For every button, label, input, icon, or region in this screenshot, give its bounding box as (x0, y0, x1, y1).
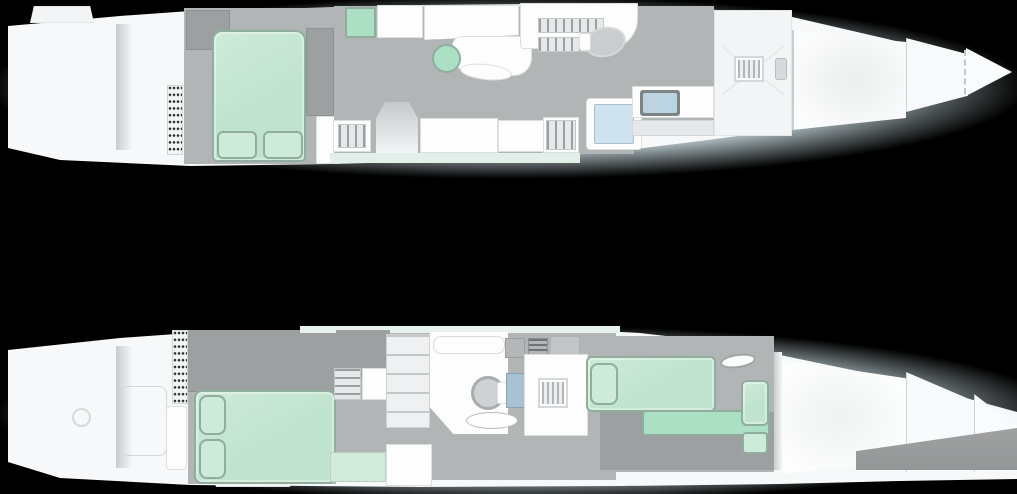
sideboard (166, 406, 187, 470)
deck-rect-outline (120, 386, 167, 456)
green-floor-strip (330, 452, 386, 482)
yacht-deck-plans-canvas (0, 0, 1017, 494)
bed-pillow (199, 395, 226, 435)
lounge-pad-vertical (741, 380, 769, 426)
sunpad-pillow (590, 363, 618, 405)
upper-deck-plan (0, 0, 1017, 178)
dinette-round-table (432, 44, 461, 73)
cabinet-small-gray (505, 338, 525, 358)
bow-cabin (792, 30, 906, 130)
pantry-cabinet (424, 5, 519, 40)
toilet-lid-upper (579, 33, 591, 51)
wardrobe-right-upper (306, 28, 334, 116)
storage-box-lower (386, 444, 432, 486)
bathtub-oval (466, 412, 518, 429)
bathroom-berth (433, 336, 505, 354)
laptop-screen (643, 93, 677, 113)
green-locker (345, 7, 376, 38)
bed-pillow (263, 131, 303, 159)
foredeck-hatch-slats (738, 60, 760, 78)
staircase-port-aft (338, 124, 366, 148)
shower-steel-panel (506, 373, 525, 408)
forepeak-bulkhead (774, 352, 782, 470)
desk-under-cabinet (632, 120, 714, 136)
crew-grate-lower (172, 330, 188, 404)
stern-arch-step (30, 6, 94, 23)
galley-cabinet-top (377, 5, 423, 38)
staircase-port-fwd (546, 120, 576, 150)
bed-pillow (217, 131, 257, 159)
deck-hatch-circle (72, 408, 91, 427)
crew-grate-upper (167, 85, 183, 155)
companionway-landing (376, 102, 418, 153)
lounge-pad-square (742, 432, 768, 454)
bow-dashed-frame-line (964, 50, 966, 94)
side-deck-strip (330, 153, 580, 163)
stern-bulwark-wall (116, 24, 132, 150)
counter-port-a (420, 118, 498, 153)
corridor-hatch-slats (542, 382, 564, 404)
bed-pillow (199, 439, 226, 479)
lower-deck-plan (0, 316, 1017, 494)
anchor-windlass (775, 58, 787, 80)
staircase-lower (334, 368, 361, 400)
shower-glass-upper (594, 104, 634, 144)
wardrobe-band-lower (188, 330, 336, 392)
shelving-unit (386, 334, 430, 428)
